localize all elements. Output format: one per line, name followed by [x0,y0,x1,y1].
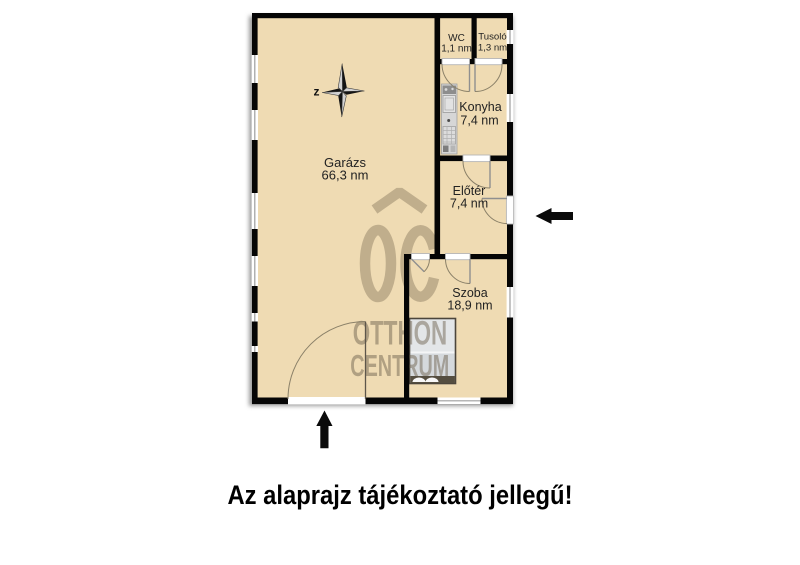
svg-text:18,9 nm: 18,9 nm [447,299,492,313]
svg-text:Tusoló: Tusoló [478,32,506,43]
svg-text:7,4 nm: 7,4 nm [460,114,498,128]
svg-text:Konyha: Konyha [459,100,501,114]
svg-text:z: z [314,85,320,99]
svg-text:WC: WC [448,33,465,44]
svg-text:1,3 nm: 1,3 nm [478,43,507,54]
svg-text:66,3 nm: 66,3 nm [322,168,369,183]
svg-text:Az alaprajz tájékoztató jelleg: Az alaprajz tájékoztató jellegű! [228,480,573,510]
svg-text:1,1 nm: 1,1 nm [441,44,472,55]
svg-text:OTTHON: OTTHON [353,314,448,352]
svg-text:7,4 nm: 7,4 nm [450,197,488,211]
